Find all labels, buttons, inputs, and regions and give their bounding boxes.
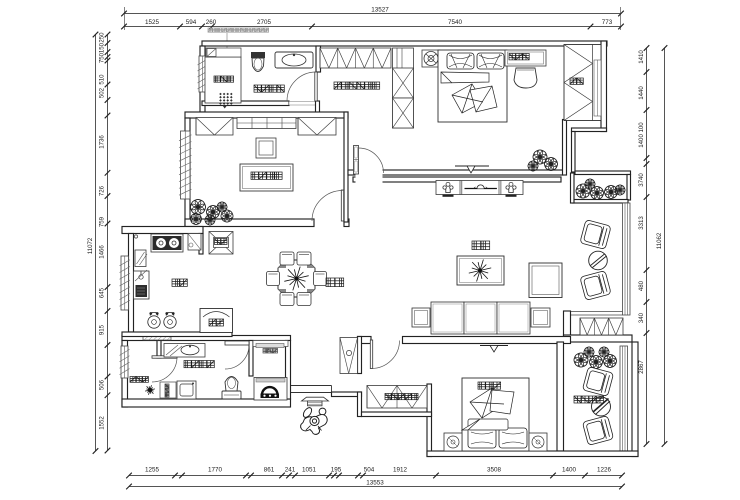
- svg-text:3508: 3508: [487, 467, 502, 474]
- svg-text:3740: 3740: [638, 173, 645, 187]
- svg-text:1255: 1255: [145, 467, 160, 474]
- svg-text:3313: 3313: [638, 216, 645, 230]
- svg-text:480: 480: [638, 280, 645, 291]
- svg-text:150: 150: [99, 42, 106, 53]
- svg-text:502: 502: [99, 87, 106, 98]
- svg-text:1400: 1400: [562, 467, 577, 474]
- svg-text:759: 759: [99, 216, 106, 227]
- svg-text:594: 594: [186, 19, 197, 26]
- svg-text:1552: 1552: [99, 416, 106, 430]
- svg-text:2867: 2867: [638, 360, 645, 374]
- svg-text:504: 504: [364, 467, 375, 474]
- svg-text:1466: 1466: [99, 245, 106, 259]
- svg-text:7540: 7540: [448, 19, 463, 26]
- svg-text:1912: 1912: [393, 467, 408, 474]
- svg-text:241: 241: [285, 467, 296, 474]
- svg-text:11062: 11062: [656, 232, 663, 249]
- svg-text:1770: 1770: [208, 467, 223, 474]
- svg-text:510: 510: [99, 74, 106, 85]
- svg-text:1226: 1226: [597, 467, 612, 474]
- svg-text:340: 340: [638, 312, 645, 323]
- svg-text:1410: 1410: [638, 50, 645, 64]
- svg-text:13527: 13527: [371, 7, 389, 14]
- svg-text:195: 195: [331, 467, 342, 474]
- svg-text:506: 506: [99, 379, 106, 390]
- svg-text:750: 750: [99, 52, 106, 63]
- svg-text:250: 250: [99, 32, 106, 43]
- svg-text:773: 773: [602, 19, 613, 26]
- svg-text:13553: 13553: [366, 480, 384, 487]
- svg-text:11072: 11072: [87, 237, 94, 254]
- svg-text:1525: 1525: [145, 19, 160, 26]
- svg-text:1051: 1051: [302, 467, 317, 474]
- svg-text:1736: 1736: [99, 135, 106, 149]
- svg-text:1400 100: 1400 100: [638, 122, 645, 148]
- svg-text:2705: 2705: [257, 19, 272, 26]
- svg-text:645: 645: [99, 287, 106, 298]
- svg-text:915: 915: [99, 324, 106, 335]
- svg-text:726: 726: [99, 185, 106, 196]
- svg-text:1440: 1440: [638, 86, 645, 100]
- svg-text:260: 260: [206, 19, 217, 26]
- svg-text:861: 861: [264, 467, 275, 474]
